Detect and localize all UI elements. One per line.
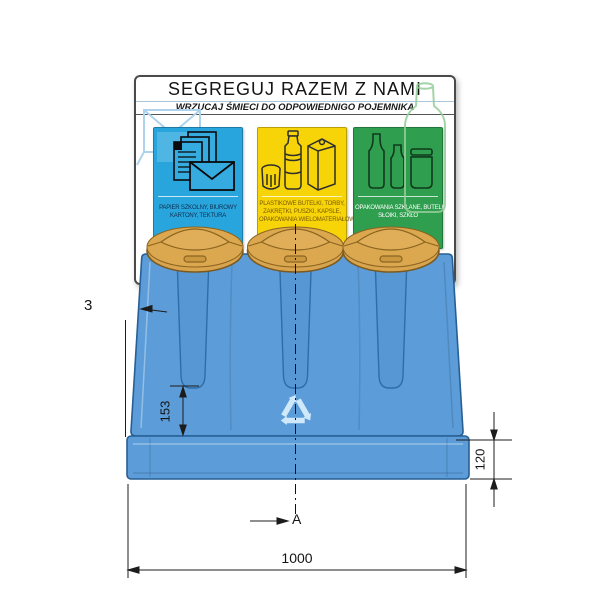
dimension-label-153: 153 <box>158 388 173 436</box>
dimension-label-120: 120 <box>473 436 488 484</box>
technical-drawing-canvas: SEGREGUJ RAZEM Z NAMI WRZUCAJ ŚMIECI DO … <box>0 0 600 600</box>
dimension-label-wall: 3 <box>84 297 92 314</box>
lid-paper <box>147 227 243 272</box>
section-label-A: A <box>292 511 301 527</box>
dimension-label-1000: 1000 <box>275 550 319 566</box>
bin-lids <box>147 227 439 272</box>
lid-glass <box>343 227 439 272</box>
bin-base <box>127 436 469 479</box>
